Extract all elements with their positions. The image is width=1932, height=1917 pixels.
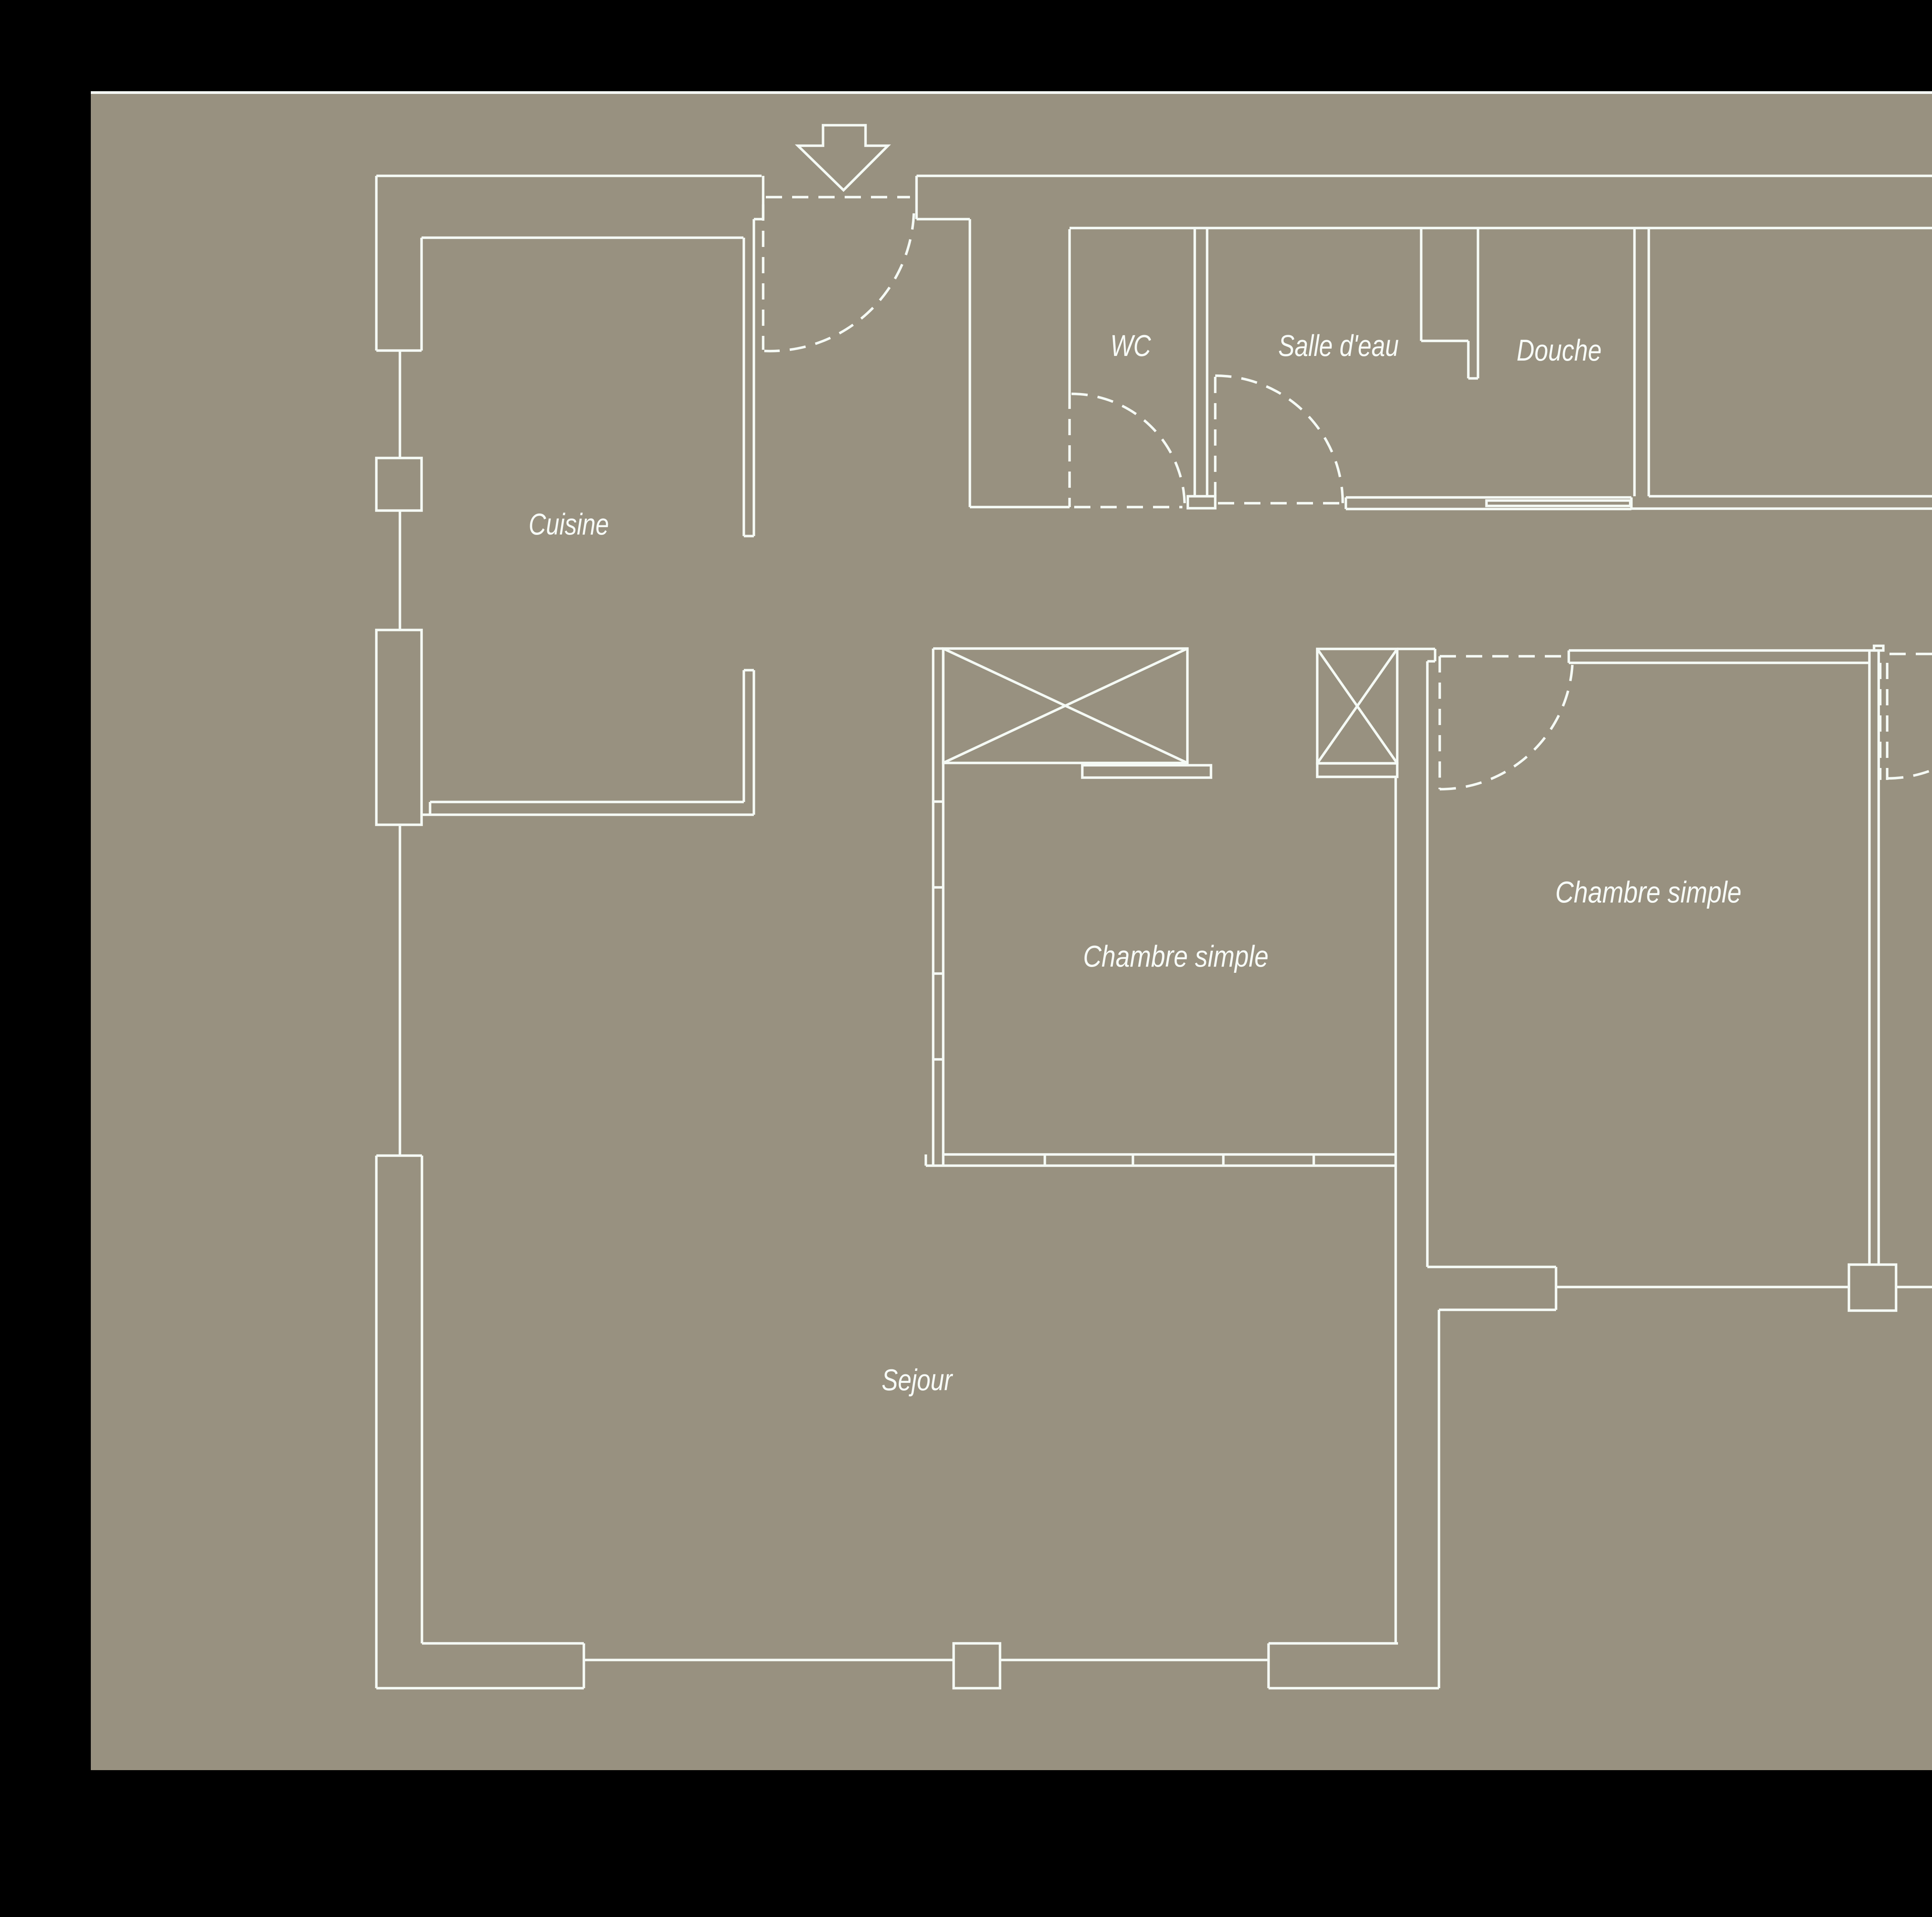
svg-text:Chambre simple: Chambre simple (1555, 875, 1742, 909)
svg-text:WC: WC (1111, 329, 1151, 363)
svg-text:Douche: Douche (1517, 333, 1602, 367)
svg-text:Cuisine: Cuisine (529, 507, 609, 541)
svg-text:Chambre simple: Chambre simple (1083, 939, 1269, 973)
svg-text:Sejour: Sejour (882, 1363, 953, 1397)
svg-text:Salle d'eau: Salle d'eau (1278, 329, 1399, 363)
